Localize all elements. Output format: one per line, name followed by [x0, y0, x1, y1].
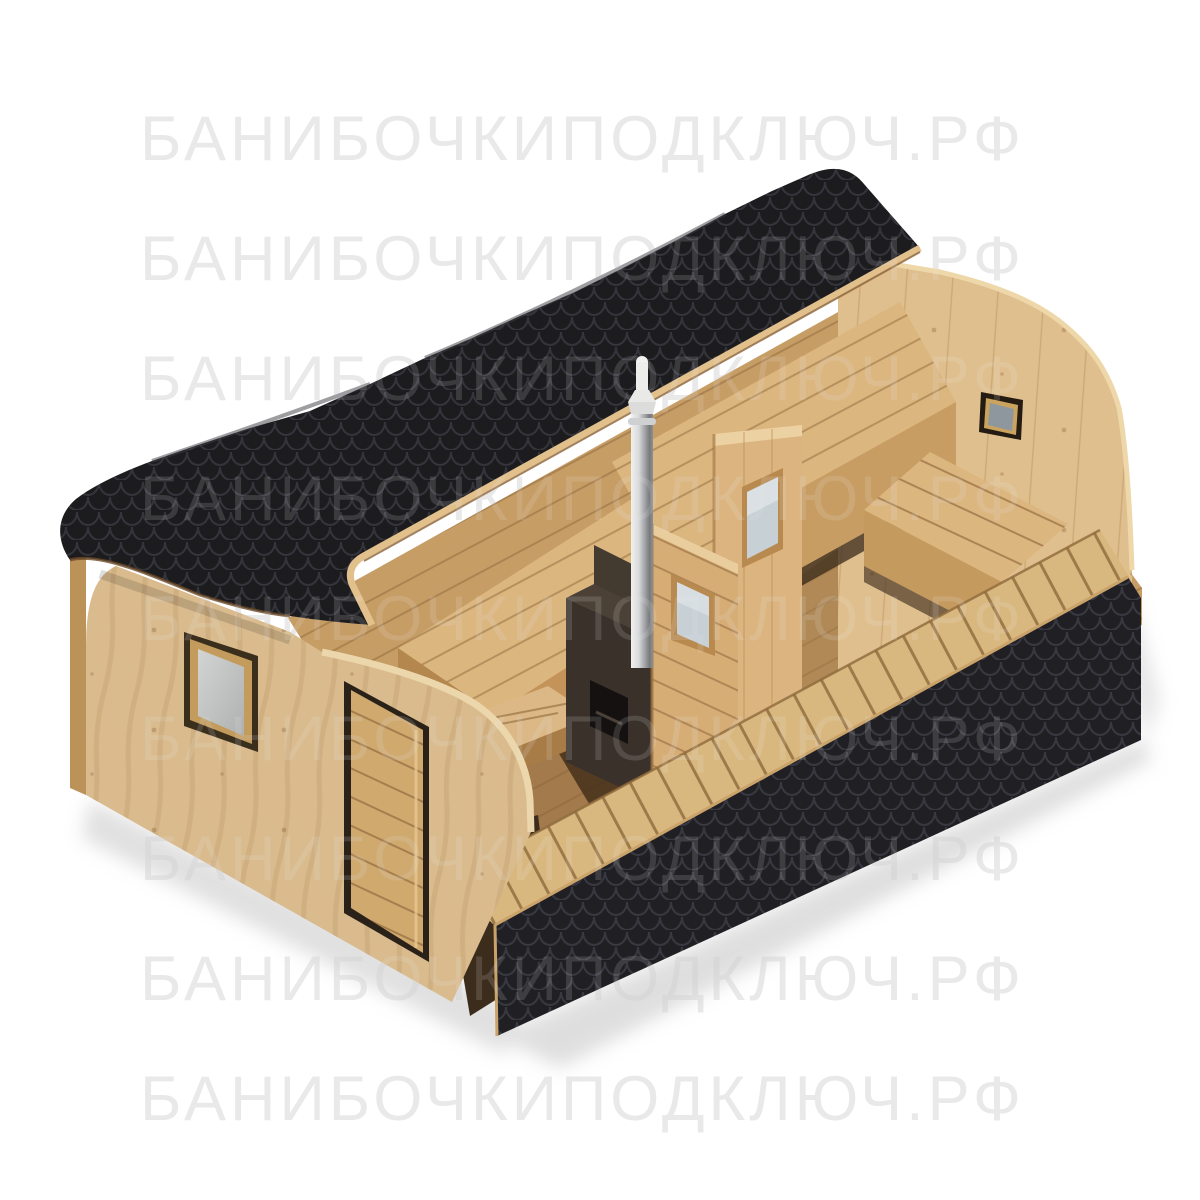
watermark-overlay: БАНИБОЧКИПОДКЛЮЧ.РФ БАНИБОЧКИПОДКЛЮЧ.РФ …	[140, 104, 1025, 1134]
product-render: БАНИБОЧКИПОДКЛЮЧ.РФ БАНИБОЧКИПОДКЛЮЧ.РФ …	[0, 0, 1200, 1200]
watermark-text-row: БАНИБОЧКИПОДКЛЮЧ.РФ	[140, 704, 1025, 774]
watermark-text-row: БАНИБОЧКИПОДКЛЮЧ.РФ	[140, 224, 1025, 294]
watermark-text-row: БАНИБОЧКИПОДКЛЮЧ.РФ	[140, 1064, 1025, 1134]
sauna-render-canvas: БАНИБОЧКИПОДКЛЮЧ.РФ БАНИБОЧКИПОДКЛЮЧ.РФ …	[0, 0, 1200, 1200]
watermark-text-row: БАНИБОЧКИПОДКЛЮЧ.РФ	[140, 344, 1025, 414]
watermark-text-row: БАНИБОЧКИПОДКЛЮЧ.РФ	[140, 944, 1025, 1014]
watermark-text-row: БАНИБОЧКИПОДКЛЮЧ.РФ	[140, 584, 1025, 654]
chimney-ring	[628, 418, 656, 425]
watermark-text-row: БАНИБОЧКИПОДКЛЮЧ.РФ	[140, 464, 1025, 534]
watermark-text-row: БАНИБОЧКИПОДКЛЮЧ.РФ	[140, 104, 1025, 174]
watermark-text-row: БАНИБОЧКИПОДКЛЮЧ.РФ	[140, 824, 1025, 894]
